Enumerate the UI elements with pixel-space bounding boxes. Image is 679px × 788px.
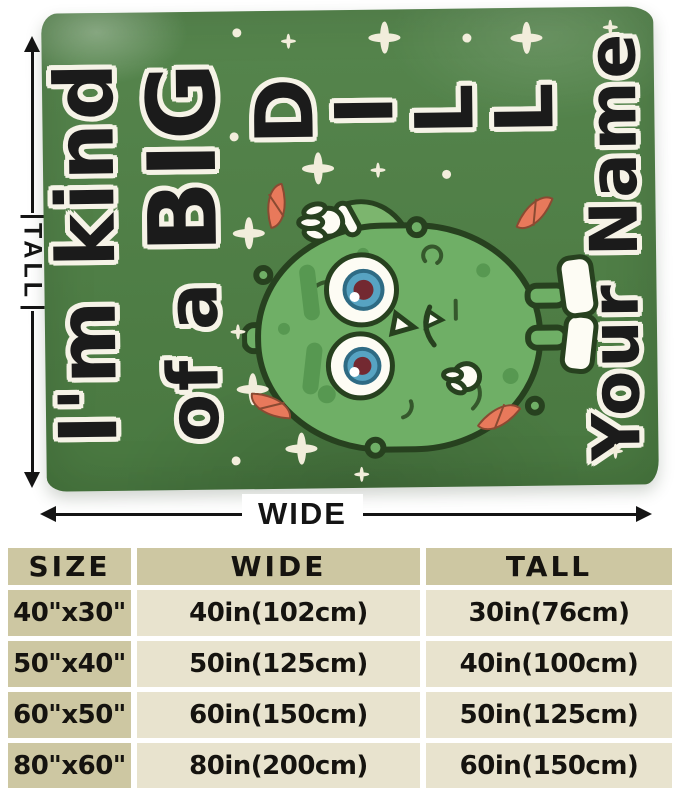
pickle-shoes <box>558 255 598 373</box>
product-size-chart-image: TALL I'm kind of a BIG D I L L Your Name <box>0 0 679 788</box>
dill-letter: I <box>325 63 406 154</box>
sparkle-icon <box>602 20 617 35</box>
arrowhead-right-icon <box>636 506 652 522</box>
sparkle-icon <box>230 324 245 339</box>
sparkle-icon <box>607 444 622 459</box>
sparkle-icon <box>354 467 369 482</box>
sparkle-icon <box>510 22 542 54</box>
dot-icon <box>232 28 241 37</box>
column-header-tall: TALL <box>426 548 672 585</box>
design-text-line1: I'm kind <box>36 17 138 488</box>
size-cell: 60"x50" <box>8 692 131 738</box>
dill-letter: D <box>245 64 326 155</box>
wide-cell: 80in(200cm) <box>137 743 420 788</box>
dot-icon <box>462 34 471 43</box>
sparkle-icon <box>285 432 317 464</box>
column-header-size: SIZE <box>8 548 131 585</box>
sparkle-icon <box>233 217 265 249</box>
dill-letter: L <box>485 61 566 152</box>
sparkle-icon <box>280 34 295 49</box>
sparkle-icon <box>302 152 334 184</box>
arrowhead-down-icon <box>24 472 40 488</box>
pickle-character-illustration <box>240 183 615 472</box>
tall-cell: 30in(76cm) <box>426 590 672 636</box>
wide-cell: 50in(125cm) <box>137 641 420 687</box>
dot-icon <box>232 456 241 465</box>
wide-cell: 40in(102cm) <box>137 590 420 636</box>
pickle-eye-right <box>326 254 397 325</box>
tall-cell: 60in(150cm) <box>426 743 672 788</box>
wide-dimension-arrow: WIDE <box>40 497 652 531</box>
blanket-mockup: I'm kind of a BIG D I L L Your Name <box>41 6 659 491</box>
design-text-dill: D I L L <box>245 61 566 155</box>
size-cell: 80"x60" <box>8 743 131 788</box>
pickle-eye-left <box>328 333 393 398</box>
sparkle-icon <box>370 163 385 178</box>
blanket-print-design: I'm kind of a BIG D I L L Your Name <box>42 10 658 487</box>
tall-cell: 40in(100cm) <box>426 641 672 687</box>
design-text-big: BIG <box>128 59 239 253</box>
sparkle-icon <box>368 21 400 53</box>
dill-letter: L <box>405 62 486 153</box>
dot-icon <box>442 170 451 179</box>
design-text-line2: of a BIG <box>130 15 247 486</box>
design-text-of-a: of a <box>151 252 235 443</box>
size-chart-table: SIZE WIDE TALL 40"x30" 40in(102cm) 30in(… <box>8 548 672 788</box>
wide-cell: 60in(150cm) <box>137 692 420 738</box>
column-header-wide: WIDE <box>137 548 420 585</box>
dot-icon <box>230 132 239 141</box>
size-cell: 50"x40" <box>8 641 131 687</box>
tall-cell: 50in(125cm) <box>426 692 672 738</box>
wide-label: WIDE <box>242 494 363 534</box>
size-cell: 40"x30" <box>8 590 131 636</box>
